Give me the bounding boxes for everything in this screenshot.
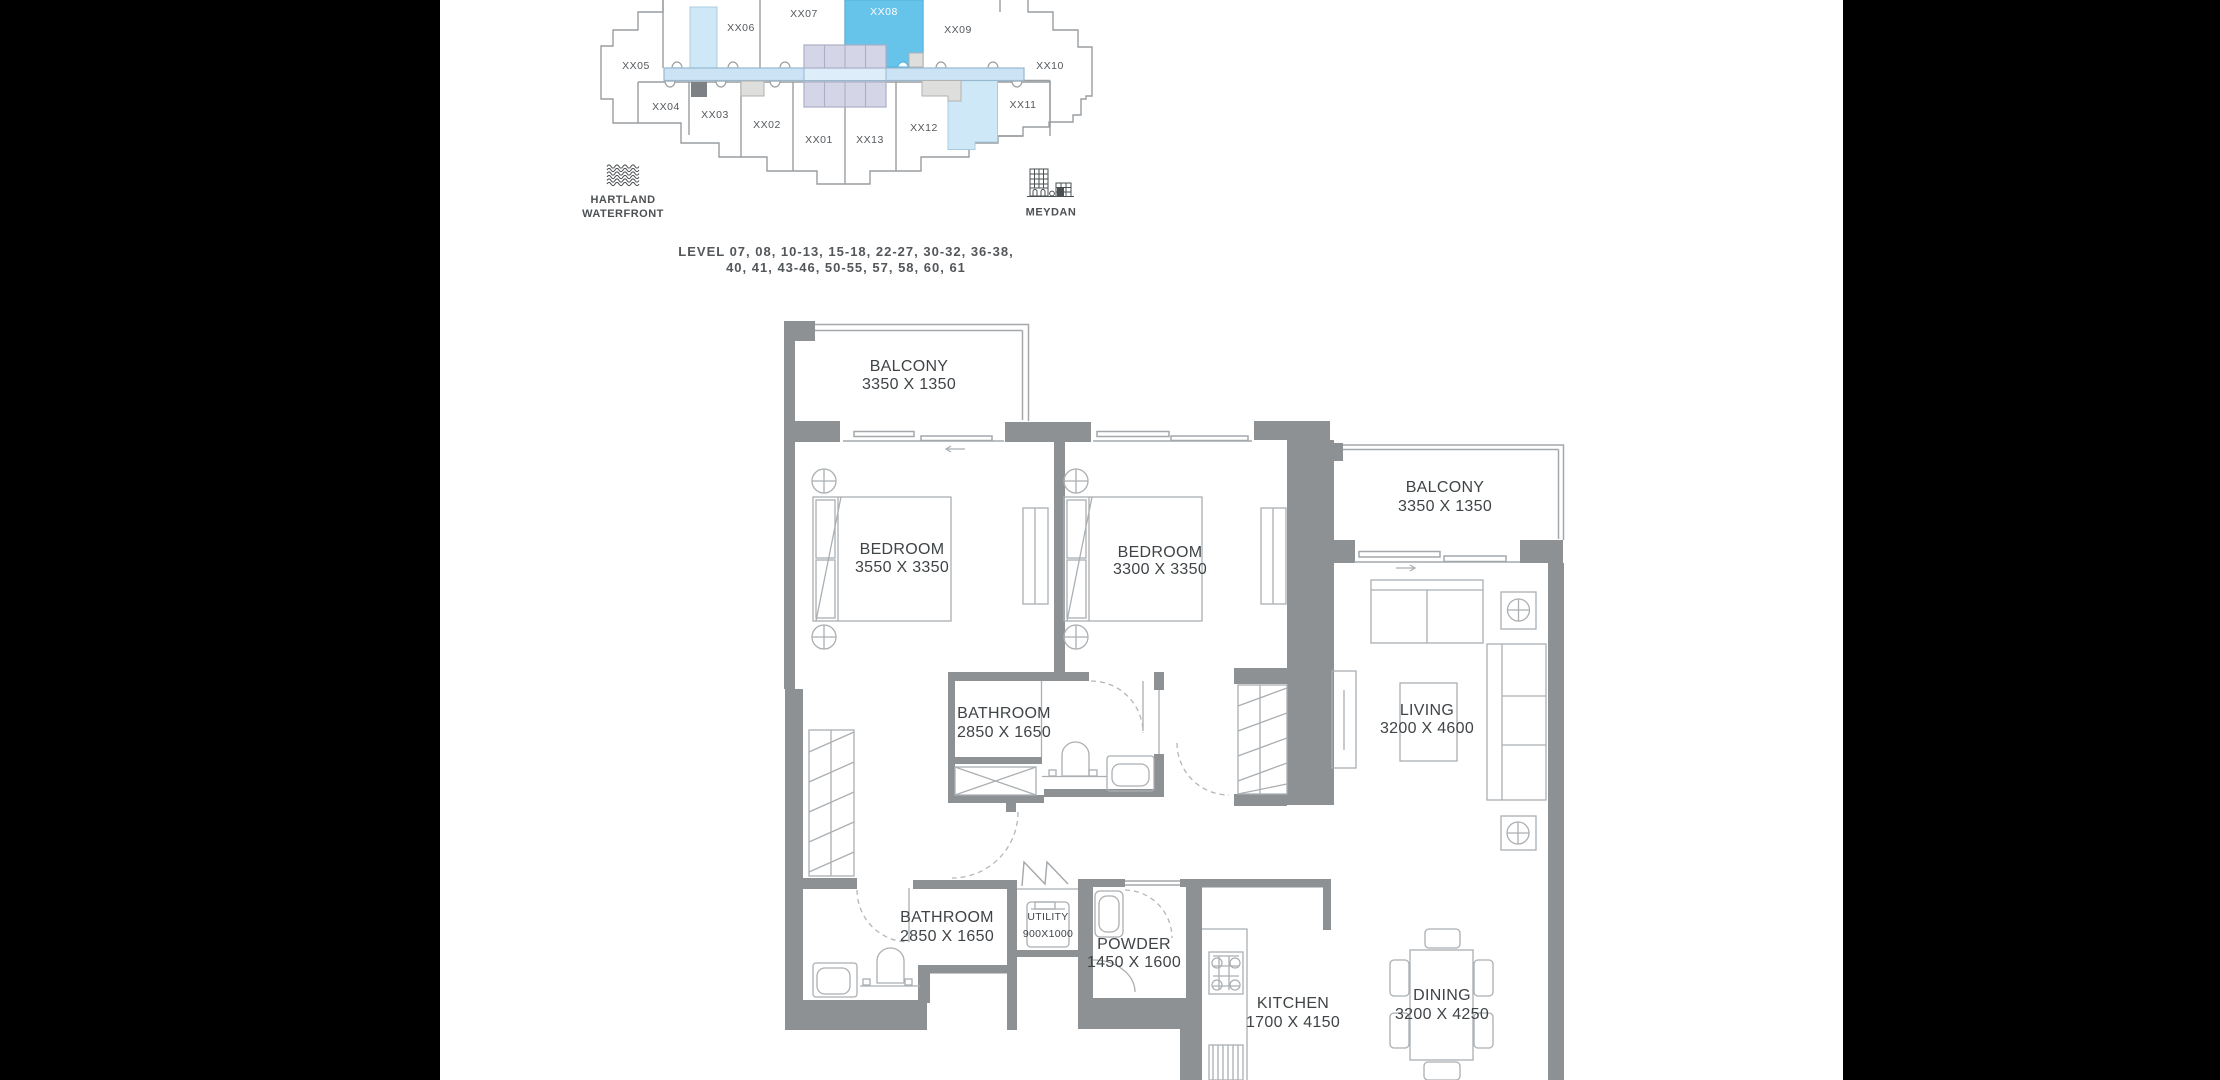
svg-text:DINING: DINING <box>1413 987 1471 1004</box>
svg-text:BATHROOM: BATHROOM <box>900 909 994 926</box>
svg-text:XX10: XX10 <box>1036 60 1064 72</box>
svg-text:XX09: XX09 <box>944 24 972 36</box>
svg-text:3300 X 3350: 3300 X 3350 <box>1113 561 1207 578</box>
svg-text:XX03: XX03 <box>701 109 729 121</box>
svg-text:40, 41, 43-46, 50-55, 57, 58,: 40, 41, 43-46, 50-55, 57, 58, 60, 61 <box>726 260 966 275</box>
svg-text:900X1000: 900X1000 <box>1023 928 1073 940</box>
svg-text:3350 X 1350: 3350 X 1350 <box>862 376 956 393</box>
svg-text:2850 X 1650: 2850 X 1650 <box>957 724 1051 741</box>
svg-text:XX08: XX08 <box>870 6 898 18</box>
svg-text:HARTLAND: HARTLAND <box>590 194 655 206</box>
svg-text:XX12: XX12 <box>910 122 938 134</box>
svg-text:3200 X 4600: 3200 X 4600 <box>1380 720 1474 737</box>
svg-text:BEDROOM: BEDROOM <box>1118 544 1203 561</box>
svg-text:WATERFRONT: WATERFRONT <box>582 208 664 220</box>
svg-text:LIVING: LIVING <box>1400 702 1454 719</box>
svg-text:XX07: XX07 <box>790 8 818 20</box>
svg-text:LEVEL 07, 08, 10-13, 15-18, 22: LEVEL 07, 08, 10-13, 15-18, 22-27, 30-32… <box>678 244 1013 259</box>
svg-text:1450 X 1600: 1450 X 1600 <box>1087 954 1181 971</box>
svg-text:1700 X 4150: 1700 X 4150 <box>1246 1014 1340 1031</box>
svg-text:XX13: XX13 <box>856 134 884 146</box>
svg-text:3550 X 3350: 3550 X 3350 <box>855 559 949 576</box>
svg-text:BATHROOM: BATHROOM <box>957 705 1051 722</box>
svg-text:XX04: XX04 <box>652 101 680 113</box>
svg-text:BALCONY: BALCONY <box>1406 479 1485 496</box>
svg-text:UTILITY: UTILITY <box>1027 911 1068 923</box>
svg-text:3200 X 4250: 3200 X 4250 <box>1395 1006 1489 1023</box>
svg-text:2850 X 1650: 2850 X 1650 <box>900 928 994 945</box>
svg-text:XX05: XX05 <box>622 60 650 72</box>
svg-text:XX06: XX06 <box>727 22 755 34</box>
svg-text:BEDROOM: BEDROOM <box>860 541 945 558</box>
svg-text:XX02: XX02 <box>753 119 781 131</box>
svg-text:KITCHEN: KITCHEN <box>1257 995 1329 1012</box>
svg-text:XX01: XX01 <box>805 134 833 146</box>
svg-text:POWDER: POWDER <box>1097 936 1171 953</box>
svg-text:BALCONY: BALCONY <box>870 358 949 375</box>
svg-text:3350 X 1350: 3350 X 1350 <box>1398 498 1492 515</box>
svg-text:XX11: XX11 <box>1010 99 1037 111</box>
svg-text:MEYDAN: MEYDAN <box>1026 207 1077 219</box>
